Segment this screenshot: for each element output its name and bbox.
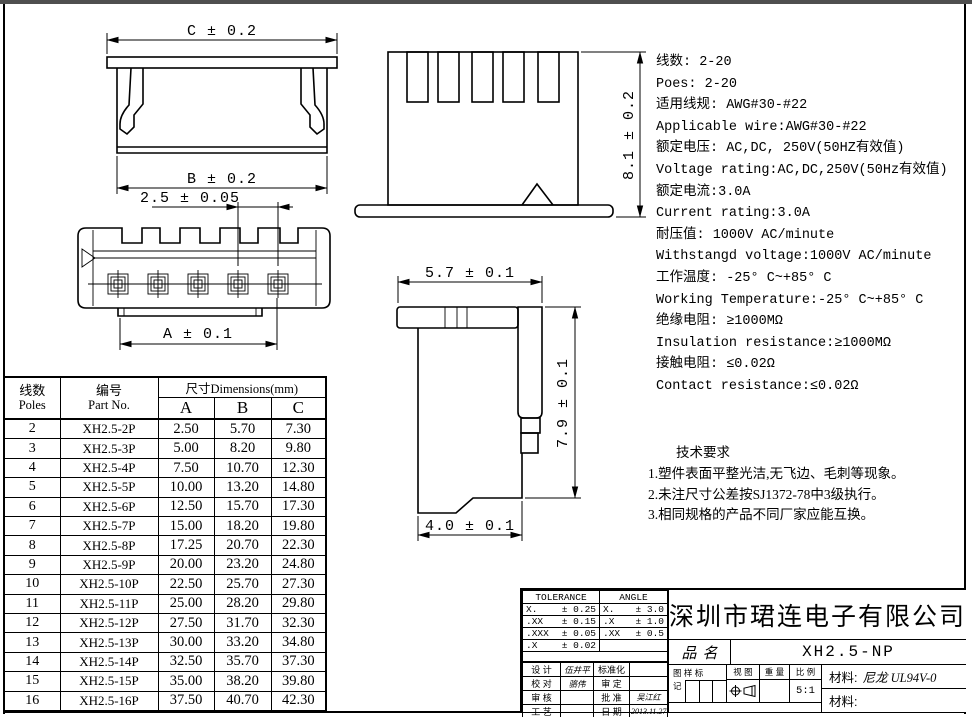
table-row: 8 XH2.5-8P 17.25 20.70 22.30 [4, 536, 326, 555]
tolerance-row: .XXX± 0.05 .XX± 0.5 [523, 628, 668, 640]
cell-dim-a: 35.00 [158, 672, 214, 691]
spec-line: 工作温度: -25° C~+85° C [656, 268, 968, 290]
table-row: 12 XH2.5-12P 27.50 31.70 32.30 [4, 613, 326, 632]
dim-label-pitch: 2.5 ± 0.05 [140, 190, 240, 207]
cell-dim-c: 14.80 [271, 478, 326, 497]
cell-part-no: XH2.5-4P [60, 458, 158, 477]
spec-line: Current rating:3.0A [656, 203, 968, 225]
signature-row: 审 核 批 准 吴江红 [523, 691, 668, 705]
cell-part-no: XH2.5-10P [60, 575, 158, 594]
col-header-dimensions: 尺寸Dimensions(mm) [158, 377, 326, 398]
cell-poles: 7 [4, 516, 60, 535]
stamp-label-2: 记 [669, 680, 685, 702]
cell-dim-b: 18.20 [214, 516, 271, 535]
cell-dim-b: 10.70 [214, 458, 271, 477]
table-row: 9 XH2.5-9P 20.00 23.20 24.80 [4, 555, 326, 574]
tolerance-row: .XX± 0.15 .X± 1.0 [523, 616, 668, 628]
back-view: 2.5 ± 0.05 A ± 0.1 [78, 190, 330, 350]
spec-line: 额定电压: AC,DC, 250V(50HZ有效值) [656, 138, 968, 160]
table-row: 3 XH2.5-3P 5.00 8.20 9.80 [4, 439, 326, 458]
weight-label: 重 量 [760, 665, 789, 680]
cell-part-no: XH2.5-14P [60, 652, 158, 671]
projection-symbol-icon [729, 684, 757, 698]
cell-dim-a: 25.00 [158, 594, 214, 613]
spec-line: 耐压值: 1000V AC/minute [656, 225, 968, 247]
cell-dim-a: 22.50 [158, 575, 214, 594]
col-header-a: A [158, 398, 214, 420]
spec-line: 适用线规: AWG#30-#22 [656, 95, 968, 117]
dim-label-b: B ± 0.2 [187, 171, 257, 188]
cell-dim-c: 37.30 [271, 652, 326, 671]
dimensions-table: 线数 Poles 编号 Part No. 尺寸Dimensions(mm) A … [3, 376, 327, 712]
tech-requirement-item: 3.相同规格的产品不同厂家应能互换。 [648, 505, 966, 526]
cell-poles: 9 [4, 555, 60, 574]
dim-label-c: C ± 0.2 [187, 23, 257, 40]
cell-poles: 11 [4, 594, 60, 613]
cell-dim-c: 42.30 [271, 691, 326, 711]
cell-poles: 3 [4, 439, 60, 458]
cell-dim-b: 23.20 [214, 555, 271, 574]
dim-label-depth: 7.9 ± 0.1 [555, 358, 572, 448]
cell-poles: 14 [4, 652, 60, 671]
col-header-b: B [214, 398, 271, 420]
top-view: 8.1 ± 0.2 [355, 52, 646, 217]
cell-dim-b: 38.20 [214, 672, 271, 691]
cell-dim-c: 9.80 [271, 439, 326, 458]
cell-dim-c: 22.30 [271, 536, 326, 555]
cell-dim-c: 7.30 [271, 419, 326, 439]
tolerance-table: TOLERANCE ANGLE X.± 0.25 X.± 3.0 .XX± 0.… [522, 590, 668, 662]
orientation-triangle [522, 184, 553, 205]
cell-part-no: XH2.5-2P [60, 419, 158, 439]
cell-poles: 8 [4, 536, 60, 555]
table-row: 13 XH2.5-13P 30.00 33.20 34.80 [4, 633, 326, 652]
cell-dim-a: 7.50 [158, 458, 214, 477]
cell-poles: 13 [4, 633, 60, 652]
cell-dim-c: 24.80 [271, 555, 326, 574]
stamp-bottom-strip [669, 702, 821, 712]
cell-dim-c: 12.30 [271, 458, 326, 477]
spec-line: Working Temperature:-25° C~+85° C [656, 290, 968, 312]
cell-poles: 6 [4, 497, 60, 516]
col-header-part-no: 编号 Part No. [60, 377, 158, 419]
material-value: 尼龙 UL94V-0 [862, 667, 936, 686]
tolerance-row: .X± 0.02 [523, 640, 668, 652]
cell-part-no: XH2.5-12P [60, 613, 158, 632]
cell-part-no: XH2.5-3P [60, 439, 158, 458]
company-name: 深圳市珺连电子有限公司 [669, 590, 966, 640]
cell-dim-a: 37.50 [158, 691, 214, 711]
signature-row: 设 计 伍井平 标准化 [523, 663, 668, 677]
cell-dim-b: 5.70 [214, 419, 271, 439]
signature-row: 工 艺 日 期 2013.11.27 [523, 705, 668, 717]
tolerance-title: TOLERANCE [523, 591, 600, 604]
table-row: 2 XH2.5-2P 2.50 5.70 7.30 [4, 419, 326, 439]
cell-poles: 4 [4, 458, 60, 477]
cell-dim-b: 40.70 [214, 691, 271, 711]
cell-part-no: XH2.5-5P [60, 478, 158, 497]
stamp-cell [685, 680, 699, 702]
weight-value [760, 680, 789, 702]
table-row: 11 XH2.5-11P 25.00 28.20 29.80 [4, 594, 326, 613]
spec-line: 线数: 2-20 [656, 52, 968, 74]
cell-dim-b: 31.70 [214, 613, 271, 632]
dim-label-a: A ± 0.1 [163, 326, 233, 343]
cell-dim-a: 2.50 [158, 419, 214, 439]
cell-dim-a: 10.00 [158, 478, 214, 497]
stamp-label: 图 样 标 [669, 665, 726, 680]
side-view: 5.7 ± 0.1 7.9 ± 0.1 4.0 ± 0.1 [397, 265, 581, 541]
engineering-drawing-sheet: C ± 0.2 B ± 0.2 [0, 0, 972, 717]
cell-part-no: XH2.5-15P [60, 672, 158, 691]
table-row: 7 XH2.5-7P 15.00 18.20 19.80 [4, 516, 326, 535]
table-row: 4 XH2.5-4P 7.50 10.70 12.30 [4, 458, 326, 477]
tech-requirement-item: 1.塑件表面平整光洁,无飞边、毛刺等现象。 [648, 464, 966, 485]
title-block: TOLERANCE ANGLE X.± 0.25 X.± 3.0 .XX± 0.… [520, 588, 966, 712]
cell-dim-c: 29.80 [271, 594, 326, 613]
cell-dim-b: 28.20 [214, 594, 271, 613]
cell-dim-b: 33.20 [214, 633, 271, 652]
spec-list: 线数: 2-20Poes: 2-20适用线规: AWG#30-#22Applic… [656, 52, 968, 398]
cell-dim-c: 34.80 [271, 633, 326, 652]
cell-dim-a: 15.00 [158, 516, 214, 535]
stamp-cell [712, 680, 726, 702]
material-label: 材料: [829, 667, 857, 686]
cell-part-no: XH2.5-13P [60, 633, 158, 652]
cell-poles: 2 [4, 419, 60, 439]
product-name-label: 品名 [669, 640, 731, 664]
cell-dim-b: 20.70 [214, 536, 271, 555]
tech-requirement-item: 2.未注尺寸公差按SJ1372-78中3级执行。 [648, 485, 966, 506]
cell-part-no: XH2.5-9P [60, 555, 158, 574]
dim-label-height: 8.1 ± 0.2 [621, 90, 638, 180]
scale-value: 5:1 [790, 680, 821, 702]
angle-title: ANGLE [600, 591, 668, 604]
spec-line: Withstangd voltage:1000V AC/minute [656, 246, 968, 268]
cell-dim-c: 17.30 [271, 497, 326, 516]
dim-label-tail: 4.0 ± 0.1 [425, 518, 515, 535]
table-row: 6 XH2.5-6P 12.50 15.70 17.30 [4, 497, 326, 516]
signature-row: 校 对 骆伟 审 定 [523, 677, 668, 691]
scale-label: 比 例 [790, 665, 821, 680]
cell-part-no: XH2.5-11P [60, 594, 158, 613]
cell-dim-c: 32.30 [271, 613, 326, 632]
cell-poles: 15 [4, 672, 60, 691]
cell-poles: 10 [4, 575, 60, 594]
spec-line: Applicable wire:AWG#30-#22 [656, 117, 968, 139]
spec-line: Poes: 2-20 [656, 74, 968, 96]
cell-dim-b: 25.70 [214, 575, 271, 594]
cell-dim-a: 27.50 [158, 613, 214, 632]
table-row: 5 XH2.5-5P 10.00 13.20 14.80 [4, 478, 326, 497]
cell-dim-b: 35.70 [214, 652, 271, 671]
spec-line: Insulation resistance:≥1000MΩ [656, 333, 968, 355]
dim-label-width: 5.7 ± 0.1 [425, 265, 515, 282]
cell-part-no: XH2.5-16P [60, 691, 158, 711]
tech-requirements-title: 技术要求 [648, 443, 966, 464]
cell-part-no: XH2.5-6P [60, 497, 158, 516]
product-name-value: XH2.5-NP [731, 640, 966, 664]
view-label: 视 图 [727, 665, 759, 680]
cell-poles: 5 [4, 478, 60, 497]
spec-line: 接触电阻: ≤0.02Ω [656, 354, 968, 376]
spec-line: 额定电流:3.0A [656, 182, 968, 204]
cell-dim-a: 32.50 [158, 652, 214, 671]
cell-dim-b: 8.20 [214, 439, 271, 458]
cell-dim-a: 20.00 [158, 555, 214, 574]
cell-dim-a: 17.25 [158, 536, 214, 555]
signature-table: 设 计 伍井平 标准化 校 对 骆伟 审 定 [522, 662, 668, 717]
spec-line: Voltage rating:AC,DC,250V(50Hz有效值) [656, 160, 968, 182]
cell-dim-b: 13.20 [214, 478, 271, 497]
tolerance-row: X.± 0.25 X.± 3.0 [523, 604, 668, 616]
col-header-poles: 线数 Poles [4, 377, 60, 419]
front-view: C ± 0.2 B ± 0.2 [107, 23, 337, 194]
cell-poles: 12 [4, 613, 60, 632]
col-header-c: C [271, 398, 326, 420]
material-label-2: 材料: [829, 691, 857, 710]
spec-line: Contact resistance:≤0.02Ω [656, 376, 968, 398]
cell-dim-c: 19.80 [271, 516, 326, 535]
table-row: 14 XH2.5-14P 32.50 35.70 37.30 [4, 652, 326, 671]
table-row: 16 XH2.5-16P 37.50 40.70 42.30 [4, 691, 326, 711]
stamp-cell [699, 680, 713, 702]
spec-line: 绝缘电阻: ≥1000MΩ [656, 311, 968, 333]
tech-requirements: 技术要求 1.塑件表面平整光洁,无飞边、毛刺等现象。2.未注尺寸公差按SJ137… [648, 443, 966, 526]
cell-dim-a: 12.50 [158, 497, 214, 516]
cell-poles: 16 [4, 691, 60, 711]
cell-dim-a: 5.00 [158, 439, 214, 458]
cell-part-no: XH2.5-8P [60, 536, 158, 555]
cell-dim-c: 39.80 [271, 672, 326, 691]
cell-part-no: XH2.5-7P [60, 516, 158, 535]
table-row: 10 XH2.5-10P 22.50 25.70 27.30 [4, 575, 326, 594]
cell-dim-b: 15.70 [214, 497, 271, 516]
cell-dim-c: 27.30 [271, 575, 326, 594]
table-row: 15 XH2.5-15P 35.00 38.20 39.80 [4, 672, 326, 691]
cell-dim-a: 30.00 [158, 633, 214, 652]
